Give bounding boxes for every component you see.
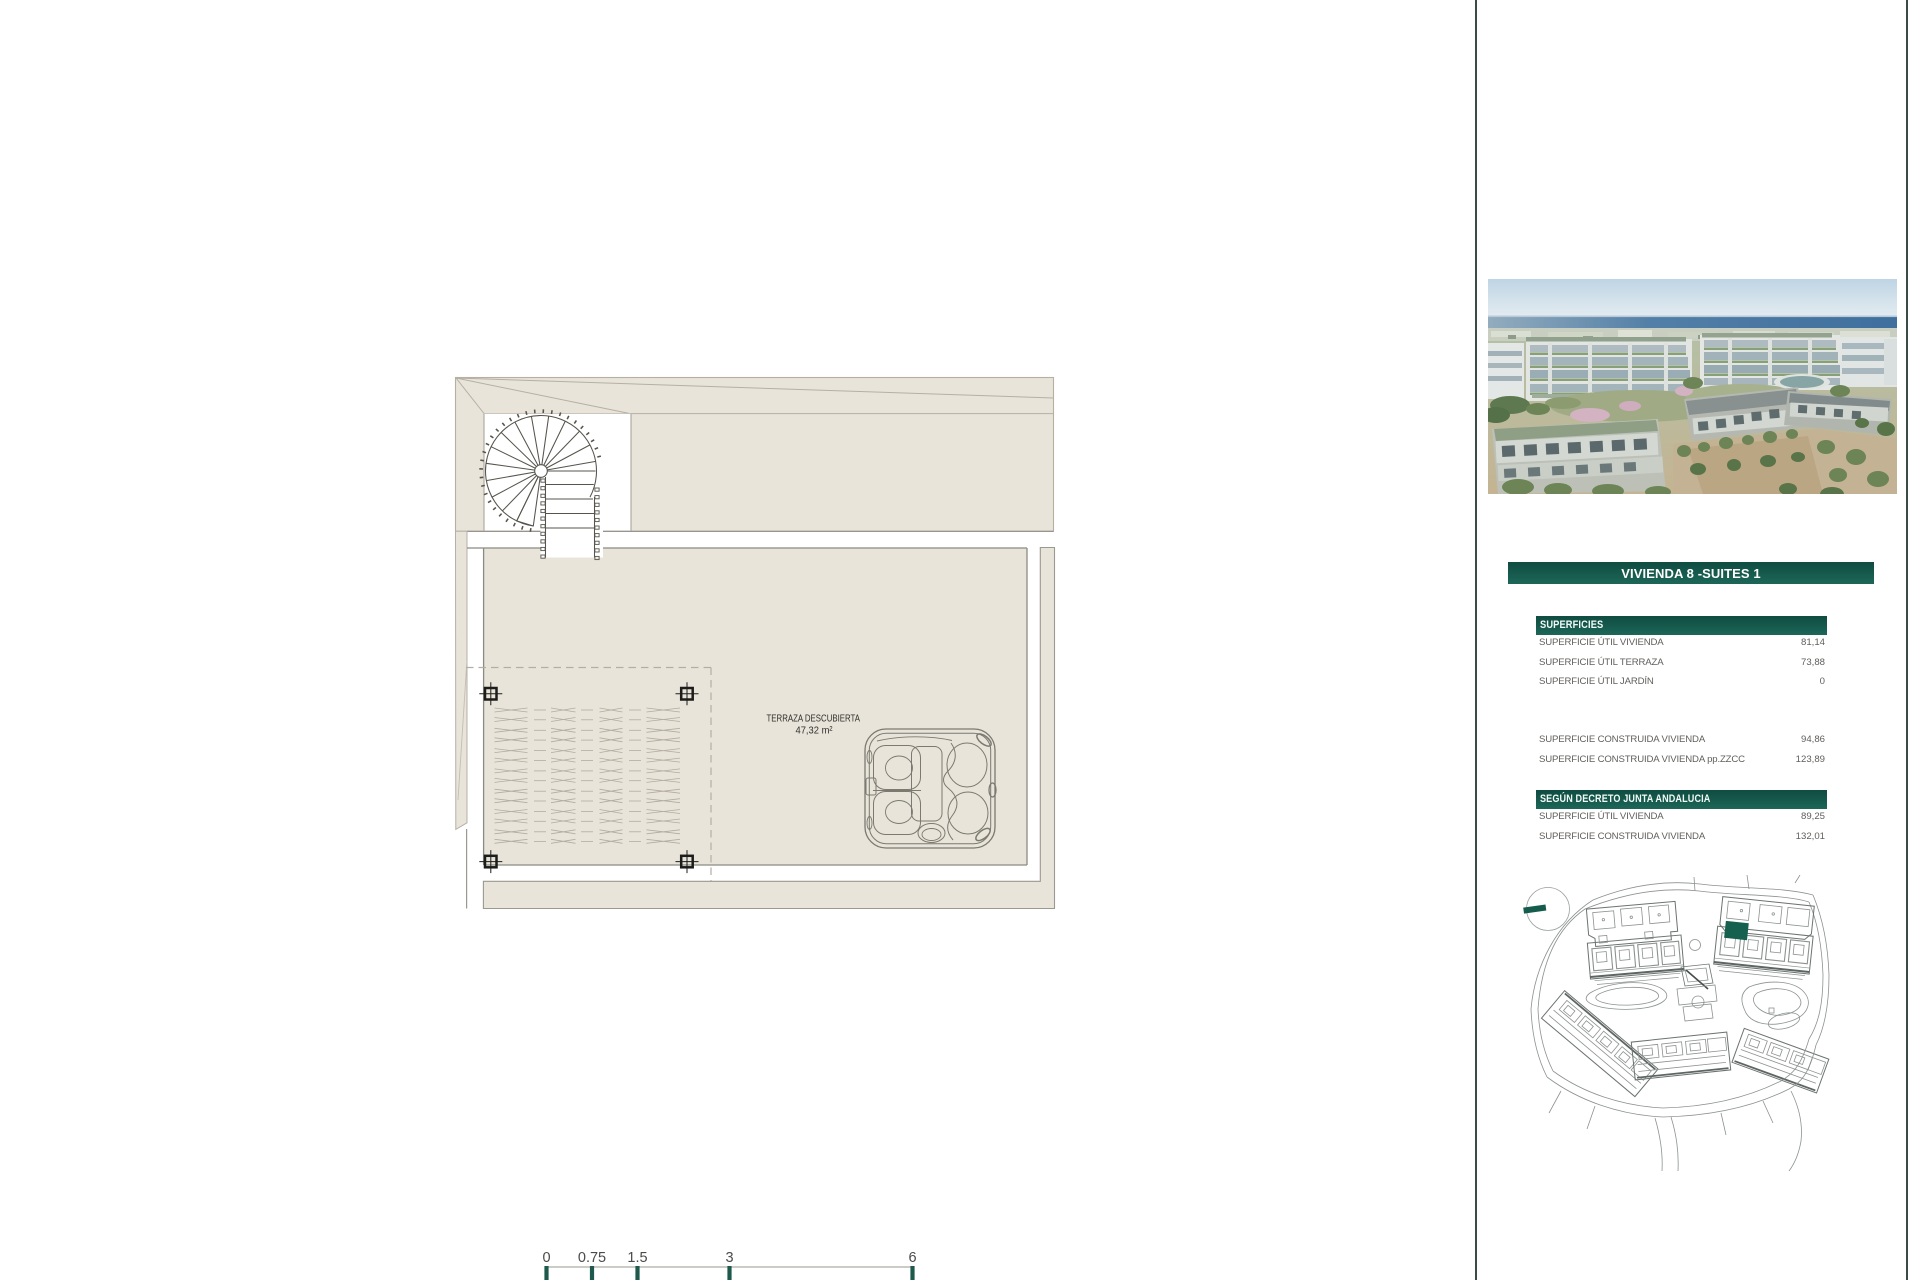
svg-text:6: 6 xyxy=(908,1250,916,1266)
svg-text:0.75: 0.75 xyxy=(578,1250,606,1266)
svg-text:0: 0 xyxy=(542,1250,550,1266)
svg-text:TERRAZA DESCUBIERTA: TERRAZA DESCUBIERTA xyxy=(767,713,861,725)
svg-text:1.5: 1.5 xyxy=(627,1250,647,1266)
svg-text:3: 3 xyxy=(725,1250,733,1266)
svg-text:47,32 m²: 47,32 m² xyxy=(796,725,833,737)
